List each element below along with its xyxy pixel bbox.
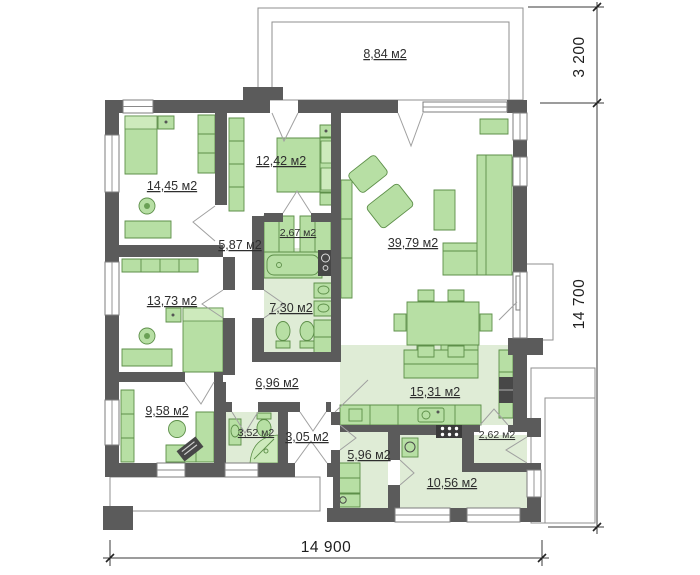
- label-utility: 10,56 м2: [427, 476, 477, 490]
- nightstand-knob: [165, 121, 168, 124]
- dimension-width: 14 900: [301, 539, 351, 556]
- floor-plan-page: 8,84 м2 14,45 м2 12,42 м2 2,67 м2 5,87 м…: [0, 0, 700, 575]
- chair-center: [144, 203, 150, 209]
- terrace-door-leaf: [516, 276, 520, 310]
- office-desk: [121, 390, 214, 462]
- label-bedroom-3: 13,73 м2: [147, 294, 197, 308]
- toilet-bowl: [276, 322, 290, 341]
- bed-pillow: [321, 168, 332, 190]
- label-living-room: 39,79 м2: [388, 236, 438, 250]
- label-terrace: 8,84 м2: [363, 47, 406, 61]
- label-wc: 3,52 м2: [238, 427, 275, 439]
- bed-pillow: [321, 141, 332, 163]
- label-hall-lower: 6,96 м2: [255, 376, 298, 390]
- label-bathroom: 7,30 м2: [269, 301, 312, 315]
- label-bedroom-2: 12,42 м2: [256, 154, 306, 168]
- armchair: [347, 154, 389, 194]
- terrace-inner-outline: [272, 22, 509, 100]
- boiler: [402, 438, 418, 457]
- terrace-door-sill: [525, 264, 553, 340]
- east-porch-inner: [545, 398, 595, 523]
- bedroom3-furniture: [122, 259, 223, 372]
- armchair: [366, 183, 415, 230]
- label-bedroom-1: 14,45 м2: [147, 179, 197, 193]
- nightstand-knob: [172, 314, 175, 317]
- floor-plan-drawing: 8,84 м2 14,45 м2 12,42 м2 2,67 м2 5,87 м…: [0, 0, 700, 575]
- label-entry: 3,05 м2: [285, 430, 328, 444]
- right-dimension-line: [528, 2, 604, 534]
- dimension-height: 14 700: [571, 279, 588, 329]
- south-porch-outline: [110, 477, 320, 511]
- bidet-bowl: [300, 322, 314, 341]
- nightstand-knob: [325, 130, 328, 133]
- dimension-terrace-depth: 3 200: [571, 36, 588, 77]
- bedroom1-furniture: [125, 115, 215, 238]
- label-pantry: 2,62 м2: [479, 429, 516, 441]
- utility-furniture: [402, 438, 418, 457]
- office-chair: [169, 421, 186, 438]
- chair-center: [144, 333, 150, 339]
- faucet: [437, 411, 440, 414]
- label-hall-upper: 5,87 м2: [218, 238, 261, 252]
- bedroom1-bed: [125, 115, 215, 238]
- office-furniture: [121, 390, 214, 462]
- label-wardrobe: 2,67 м2: [280, 227, 317, 239]
- label-office: 9,58 м2: [145, 404, 188, 418]
- bed-pillow: [125, 116, 157, 129]
- label-kitchen: 15,31 м2: [410, 385, 460, 399]
- label-mudroom: 5,96 м2: [347, 448, 390, 462]
